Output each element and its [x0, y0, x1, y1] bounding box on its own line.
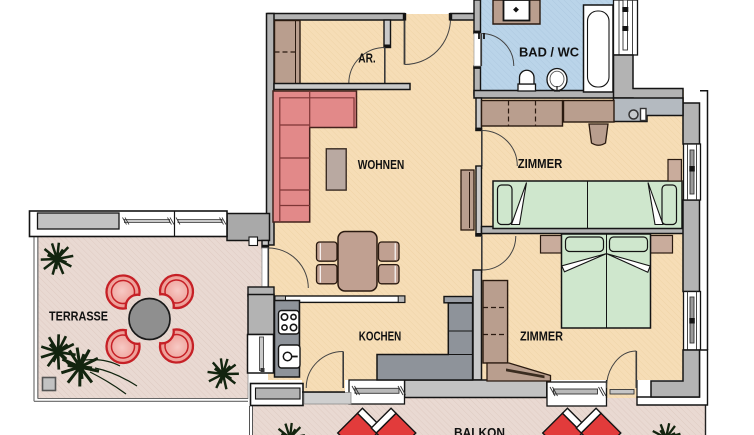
- svg-text:KOCHEN: KOCHEN: [359, 330, 402, 344]
- svg-text:BALKON: BALKON: [454, 426, 505, 435]
- svg-text:TERRASSE: TERRASSE: [49, 310, 108, 324]
- svg-text:AR.: AR.: [358, 52, 376, 66]
- svg-text:ZIMMER: ZIMMER: [518, 157, 563, 171]
- svg-text:BAD / WC: BAD / WC: [519, 46, 579, 60]
- svg-text:ZIMMER: ZIMMER: [520, 330, 563, 344]
- svg-text:WOHNEN: WOHNEN: [358, 158, 405, 172]
